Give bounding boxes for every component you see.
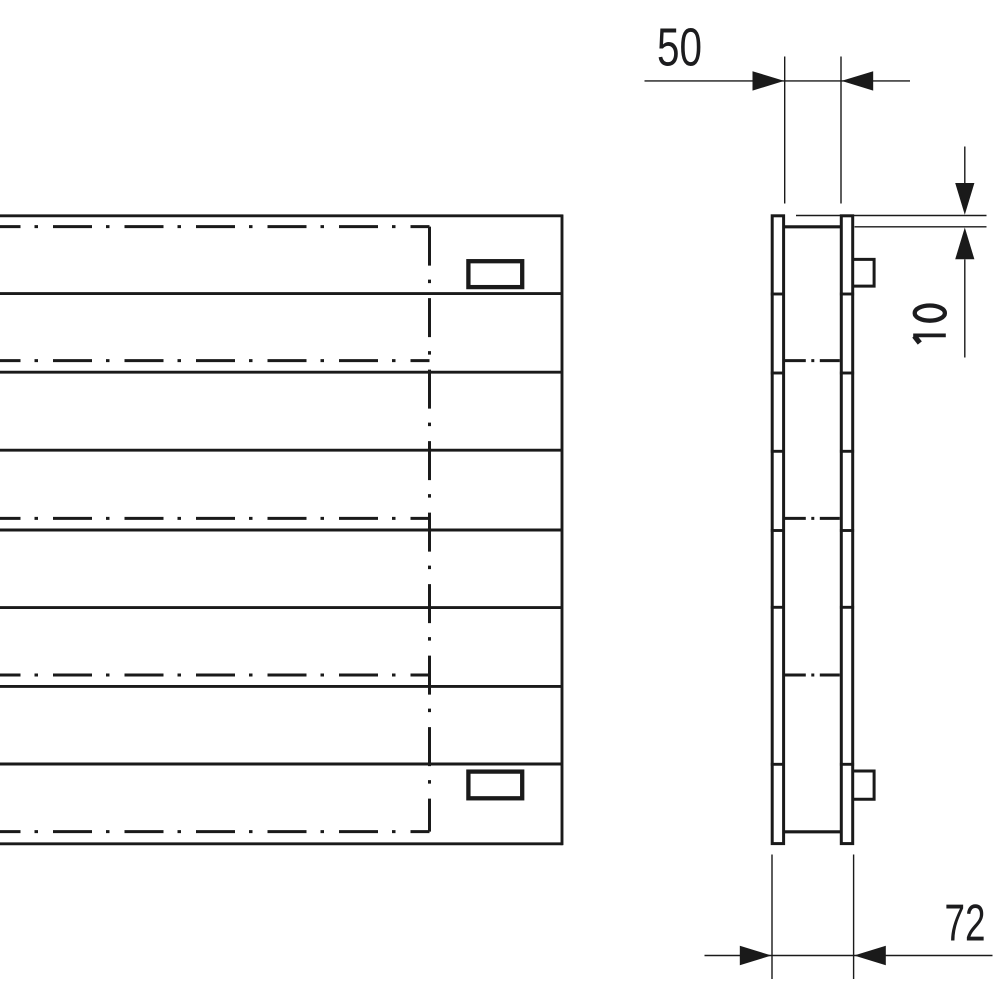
svg-text:72: 72 <box>945 895 986 953</box>
svg-text:50: 50 <box>657 18 702 78</box>
